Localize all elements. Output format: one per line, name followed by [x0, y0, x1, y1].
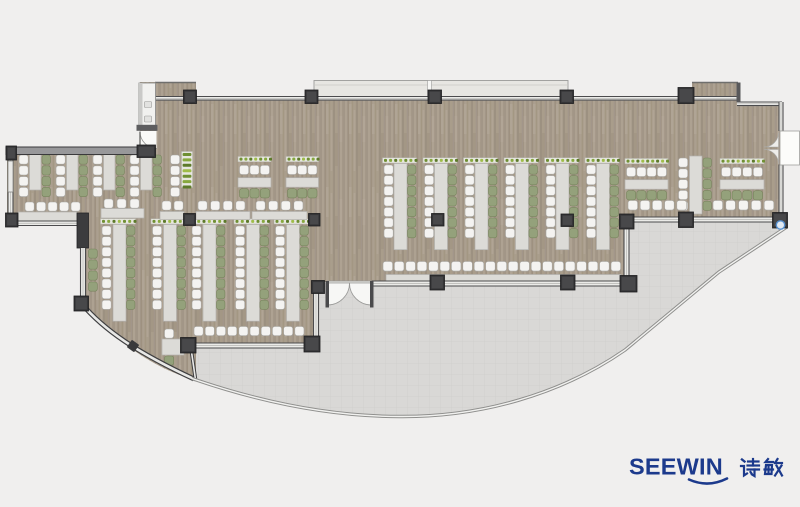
svg-text:SEEWIN: SEEWIN — [629, 454, 723, 480]
